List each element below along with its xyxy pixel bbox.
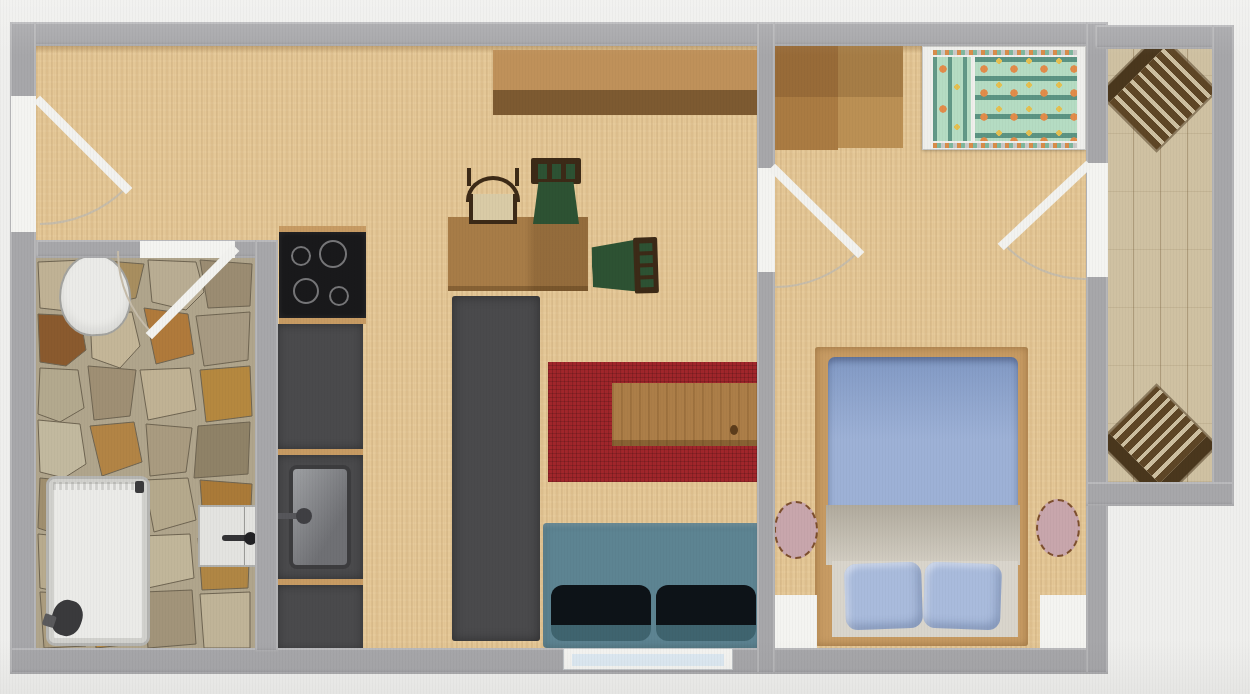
duvet [828, 357, 1018, 507]
balcony-door-opening [1087, 163, 1108, 277]
chair-seat [533, 182, 579, 224]
sideboard [493, 50, 760, 90]
baby-crib [922, 46, 1086, 150]
kitchen-sink-unit [277, 455, 363, 579]
chair-backrest [633, 237, 659, 294]
window-glass [572, 654, 724, 666]
crib-pillow [933, 57, 971, 141]
blanket [826, 505, 1020, 565]
wardrobe-shadow [772, 45, 903, 97]
bathroom-wall-right [255, 240, 278, 652]
floor-plan-canvas [0, 0, 1250, 694]
backrest-slot [640, 255, 653, 263]
chair-beige [464, 167, 522, 225]
entrance-opening [11, 96, 36, 232]
crib-fringe [933, 143, 1077, 148]
wall-living-bedroom [757, 22, 775, 674]
balcony-wall-right [1212, 25, 1234, 506]
sofa-cushion [551, 585, 651, 641]
chair-green [591, 237, 659, 295]
burner-ring [291, 246, 311, 266]
round-nightstand [774, 501, 818, 559]
double-bed [815, 347, 1028, 646]
round-nightstand [1036, 499, 1080, 557]
backrest-slot [552, 164, 561, 179]
backrest-slot [566, 164, 575, 179]
kitchen-counter [277, 324, 363, 449]
burner-ring [319, 240, 347, 268]
burner-ring [329, 286, 349, 306]
balcony-wall-bottom [1086, 482, 1234, 506]
backrest-slot [640, 279, 653, 287]
chair-green [531, 158, 581, 224]
bedroom-door-opening [758, 168, 775, 272]
cooktop [279, 232, 366, 318]
backrest-slot [639, 243, 652, 251]
kitchen-counter [277, 585, 363, 650]
pipe-fitting [135, 481, 144, 493]
coffee-table [612, 383, 759, 446]
burner-ring [293, 278, 319, 304]
wood-knot [730, 425, 738, 435]
tall-cabinet [452, 296, 540, 641]
crib-fringe [933, 50, 1077, 55]
pillow [844, 562, 923, 631]
living-room-window [563, 648, 733, 670]
crib-mattress [975, 57, 1077, 141]
chair-post [515, 168, 519, 186]
radiator-ridge [53, 482, 143, 490]
backrest-slot [538, 164, 547, 179]
exterior-wall-bottom [10, 648, 1108, 674]
sideboard-front [493, 90, 760, 115]
exterior-wall-top [10, 22, 1108, 46]
chair-seat [469, 194, 517, 224]
chair-post [467, 168, 471, 186]
dining-table [448, 217, 588, 291]
chair-seat [591, 240, 637, 294]
bedroom-window [1040, 595, 1086, 648]
wall-bedroom-balcony [1086, 22, 1108, 674]
pillow [923, 562, 1002, 631]
bathroom-door-opening [140, 241, 235, 258]
bedroom-window [770, 595, 817, 648]
faucet-head [296, 508, 312, 524]
sofa [543, 523, 762, 648]
sofa-cushion [656, 585, 756, 641]
backrest-slot [640, 267, 653, 275]
